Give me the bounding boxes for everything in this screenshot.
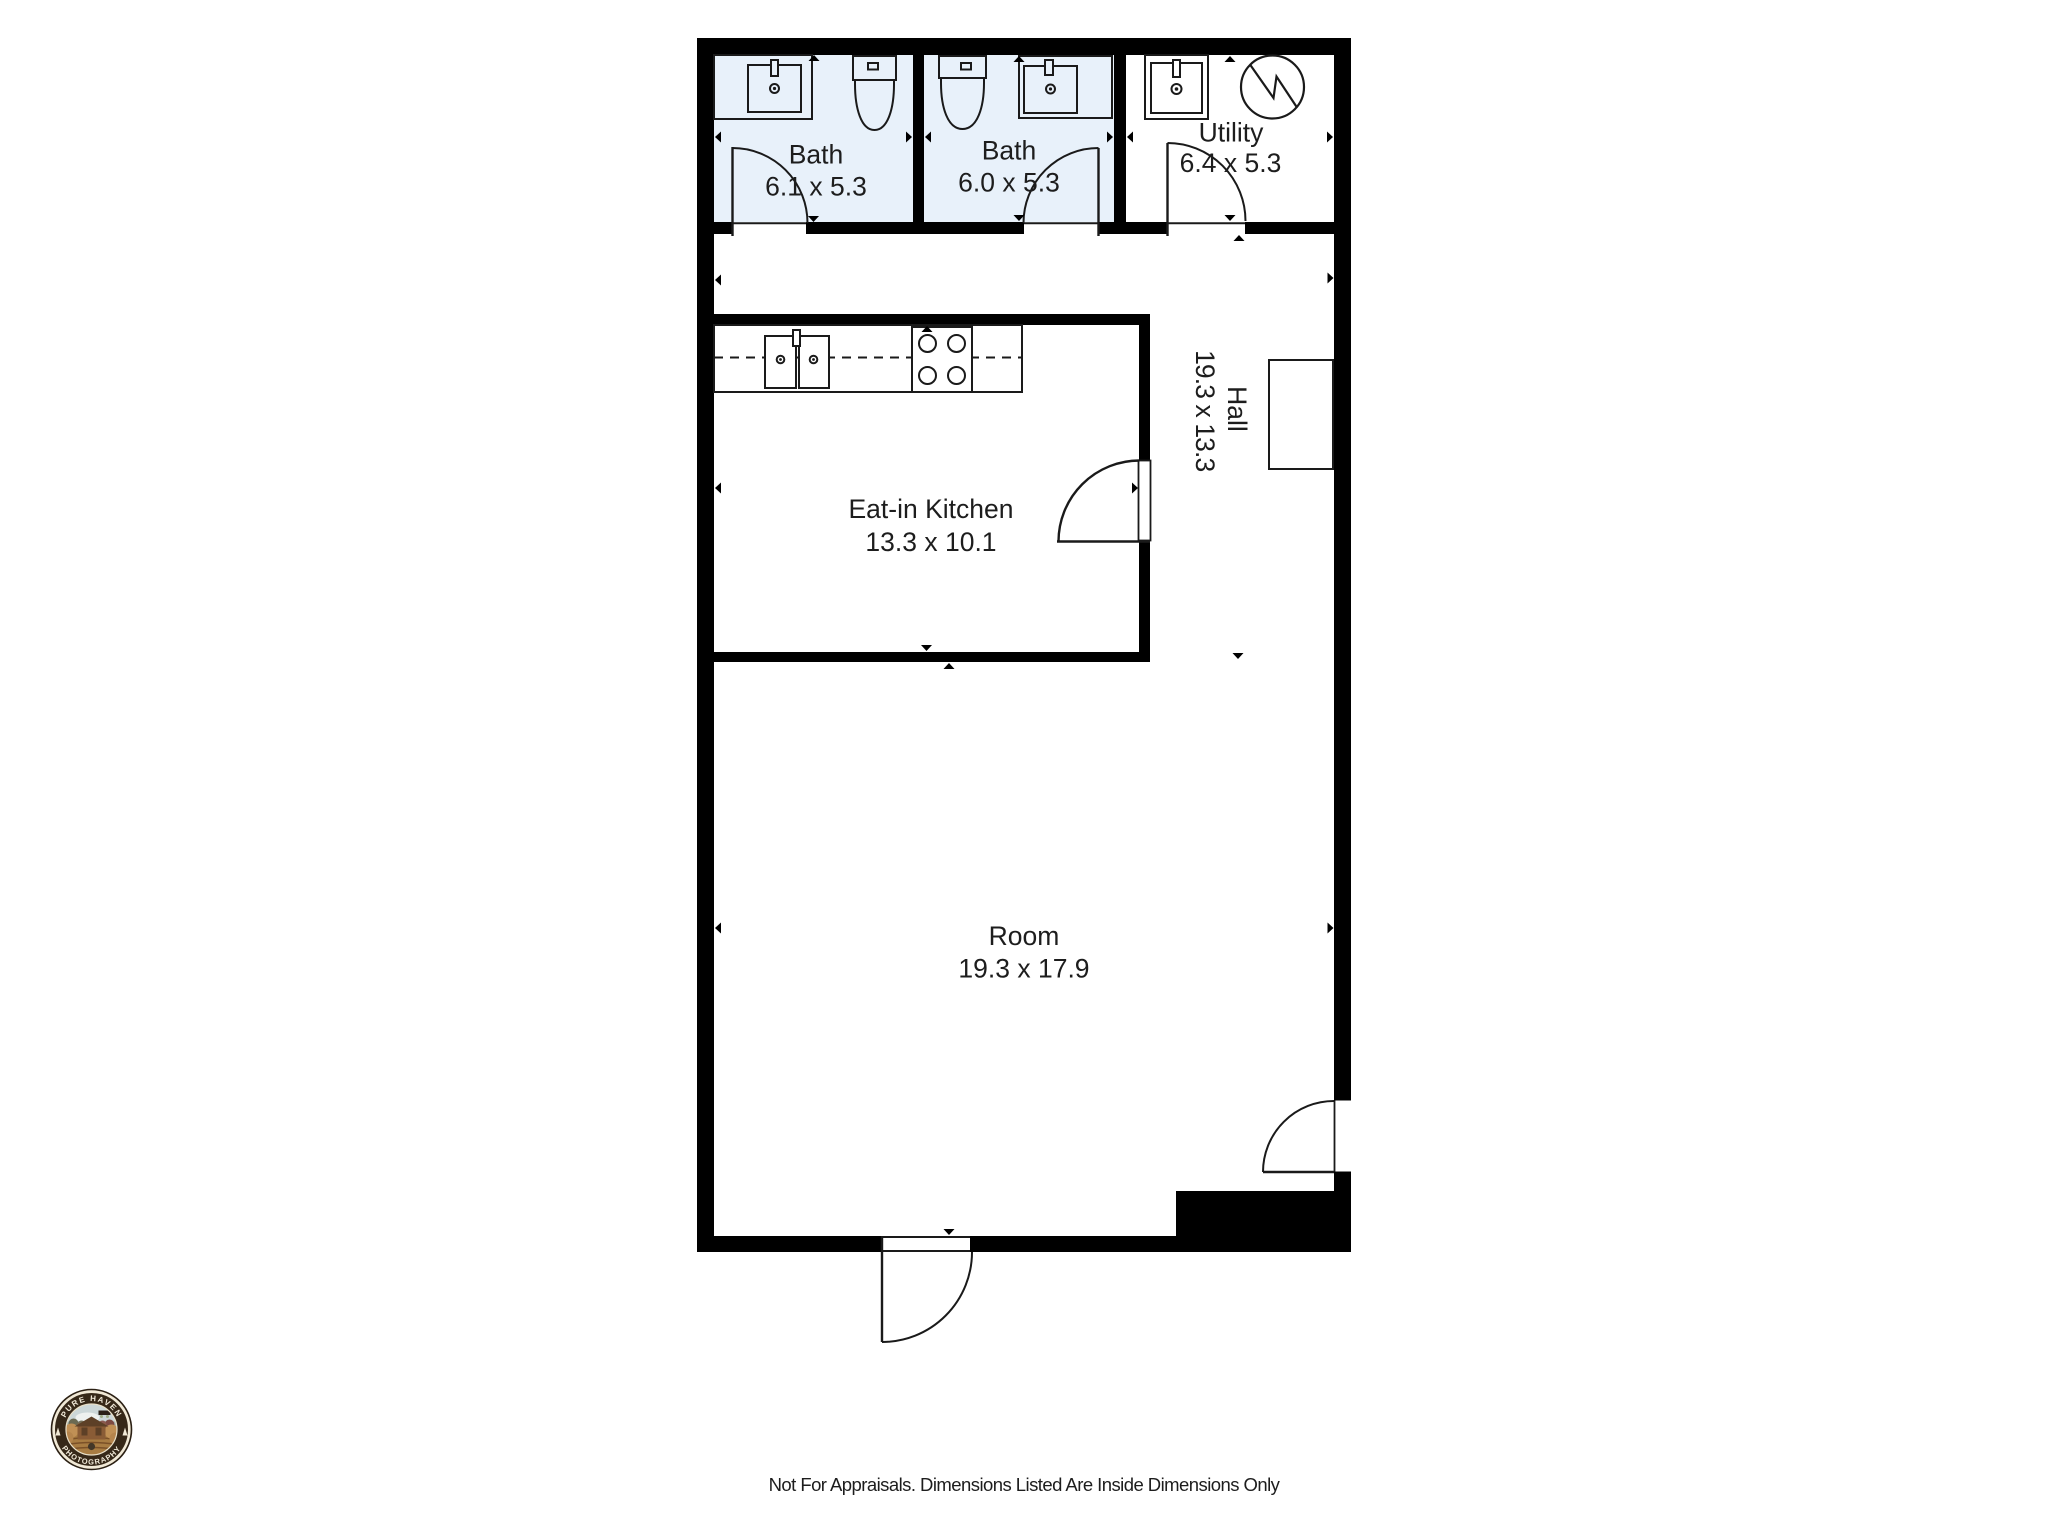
svg-text:Bath: Bath — [982, 136, 1037, 166]
svg-text:6.4 x 5.3: 6.4 x 5.3 — [1180, 148, 1282, 178]
svg-text:6.1 x 5.3: 6.1 x 5.3 — [765, 172, 867, 202]
svg-text:6.0 x 5.3: 6.0 x 5.3 — [958, 168, 1060, 198]
svg-text:Eat-in Kitchen: Eat-in Kitchen — [849, 494, 1014, 524]
svg-text:Hall: Hall — [1222, 386, 1252, 432]
svg-text:19.3 x 17.9: 19.3 x 17.9 — [958, 954, 1089, 984]
svg-text:Utility: Utility — [1199, 118, 1265, 148]
svg-text:Room: Room — [989, 921, 1060, 951]
svg-text:Bath: Bath — [789, 140, 844, 170]
svg-text:19.3 x 13.3: 19.3 x 13.3 — [1190, 350, 1220, 471]
svg-text:Not For Appraisals. Dimensions: Not For Appraisals. Dimensions Listed Ar… — [769, 1474, 1281, 1495]
svg-text:13.3 x 10.1: 13.3 x 10.1 — [865, 527, 996, 557]
